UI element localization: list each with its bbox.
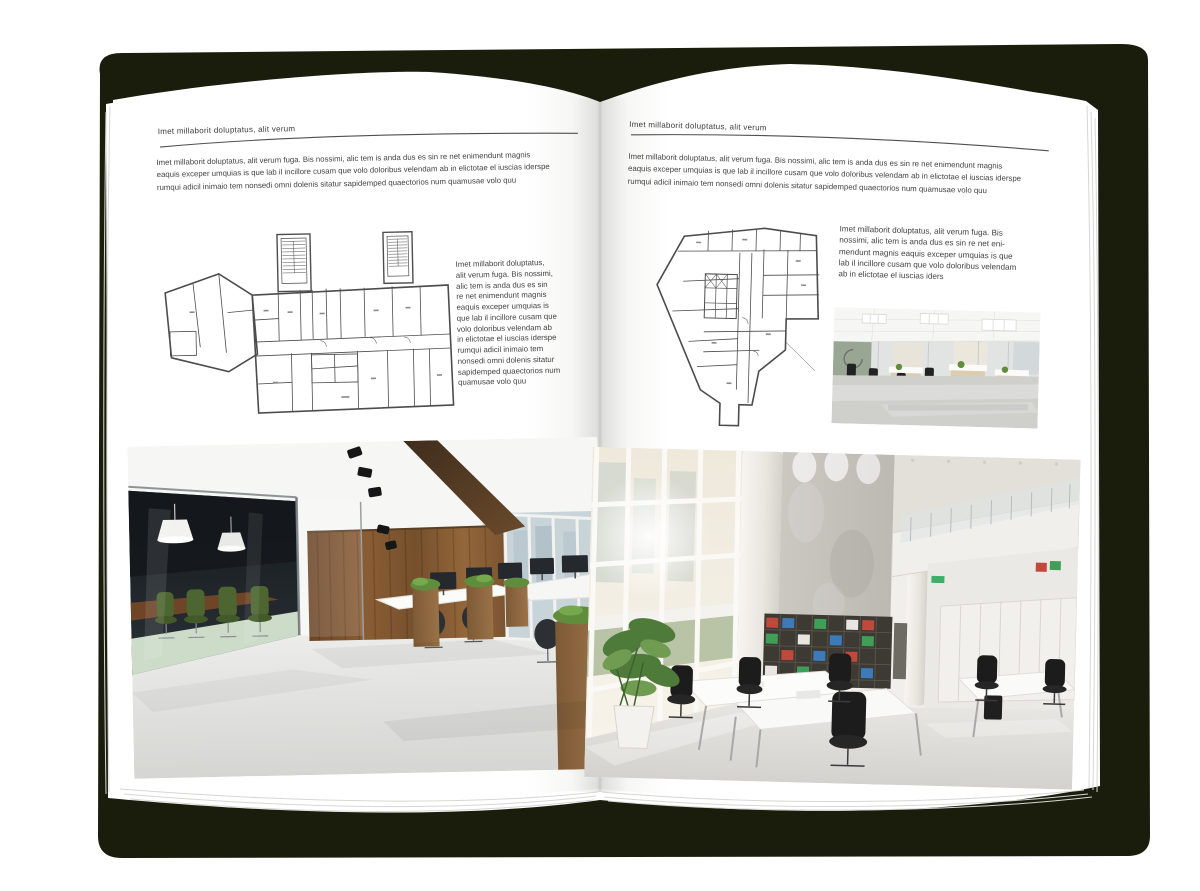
sidebar-text-right: Imet millaborit doluptatus, alit verum f… bbox=[838, 223, 1054, 285]
intro-paragraph-left: Imet millaborit doluptatus, alit verum f… bbox=[156, 147, 617, 194]
office-photo-small bbox=[831, 307, 1040, 428]
small-photo-floor bbox=[831, 371, 1038, 428]
intro-paragraph-right: Imet millaborit doluptatus, alit verum f… bbox=[628, 151, 1099, 201]
room-partitions bbox=[670, 227, 821, 405]
elevator-core bbox=[704, 274, 737, 319]
concrete-wall bbox=[778, 448, 895, 643]
stair-tower bbox=[277, 232, 413, 292]
magazine-spread-mockup: Imet millaborit doluptatus, alit verum I… bbox=[0, 0, 1200, 891]
left-page-content: Imet millaborit doluptatus, alit verum I… bbox=[113, 85, 615, 815]
floorplan-left-drawing bbox=[158, 228, 458, 416]
header-rule-right bbox=[629, 129, 1051, 154]
sidebar-text-left: Imet millaborit doluptatus, alit verum f… bbox=[456, 257, 594, 389]
office-photo-right bbox=[584, 447, 1080, 790]
plan-micro-labels bbox=[692, 238, 807, 386]
right-page-content: Imet millaborit doluptatus, alit verum I… bbox=[581, 95, 1100, 828]
left-wing bbox=[165, 273, 258, 373]
office-photo-left bbox=[127, 437, 604, 779]
floorplan-right-drawing bbox=[639, 220, 830, 429]
main-wing bbox=[252, 285, 454, 413]
